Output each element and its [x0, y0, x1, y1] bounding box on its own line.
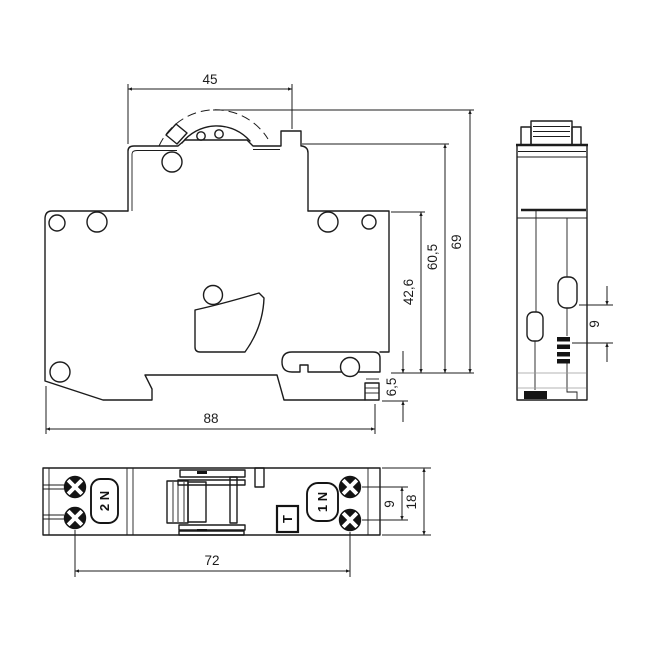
dim-88-label: 88 [203, 411, 218, 426]
din-clip-body [282, 352, 380, 372]
terminal-screw [65, 508, 86, 529]
body-hole [49, 215, 65, 231]
dim-45-label: 45 [202, 72, 217, 87]
side-body-outline [517, 145, 587, 400]
toggle-tab-right [572, 127, 581, 145]
spring-rib [557, 345, 570, 350]
grip-cutout [195, 293, 264, 352]
spring-rib [557, 359, 570, 364]
bottom-view: 2 N T 1 N 9 [43, 468, 431, 577]
main-side-view: 45 69 60,5 42,6 6,5 88 [45, 72, 474, 434]
dim-18-label: 18 [404, 494, 419, 509]
housing-rivet [162, 152, 182, 172]
terminal-label-2n: 2 N [97, 491, 112, 511]
side-screw-left [527, 312, 543, 341]
terminal-label-1n: 1 N [315, 492, 330, 512]
dim-42-6-label: 42,6 [401, 279, 416, 305]
housing-outline [128, 131, 308, 211]
dim-69-label: 69 [449, 234, 464, 249]
bottom-notch [255, 468, 264, 487]
dim-6-5-label: 6,5 [384, 378, 399, 397]
grip-rivet [204, 286, 223, 305]
toggle-pin-right [215, 130, 223, 138]
side-screw-right [558, 277, 577, 308]
terminal-screw [65, 477, 86, 498]
bottom-dim-9-label: 9 [382, 500, 397, 508]
body-hole [87, 212, 107, 232]
front-narrow-view: 9 [516, 121, 613, 400]
clip-step-line [567, 364, 577, 400]
din-clip-tail [365, 383, 379, 400]
technical-drawing-page: 45 69 60,5 42,6 6,5 88 [0, 0, 656, 656]
foot-rivet [50, 362, 70, 382]
side-dim-9-label: 9 [587, 320, 602, 328]
body-hole [318, 212, 338, 232]
toggle-pin-left [197, 132, 205, 140]
body-hole [362, 215, 376, 229]
body-right-outline [308, 211, 389, 352]
spring-rib [557, 352, 570, 357]
spring-rib [557, 337, 570, 342]
clip-foot-black [524, 391, 547, 399]
test-button-label: T [280, 515, 295, 523]
toggle-end-view [167, 470, 245, 535]
terminal-screw [340, 510, 361, 531]
din-clip-rivet [341, 358, 360, 377]
side-toggle-handle [531, 121, 572, 145]
dim-72-label: 72 [204, 553, 219, 568]
terminal-screw [340, 477, 361, 498]
dim-60-5-label: 60,5 [425, 244, 440, 270]
dimension-drawing-svg: 45 69 60,5 42,6 6,5 88 [0, 0, 656, 656]
toggle-tab-left [521, 127, 531, 145]
